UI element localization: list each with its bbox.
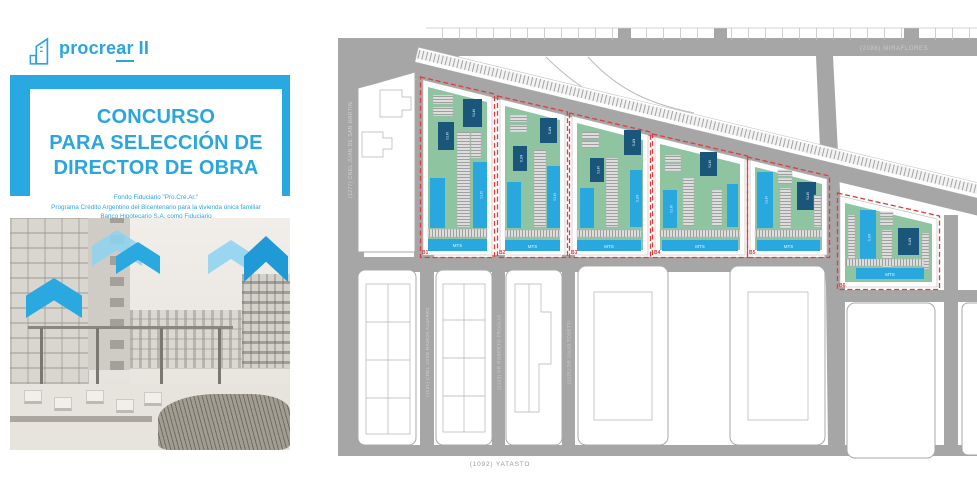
- parking-rows: [778, 170, 792, 176]
- tower-label: MTS: [708, 160, 712, 168]
- tower-label: MTS: [764, 196, 768, 204]
- tower-label: MTS: [519, 155, 523, 163]
- lot-ticks: [727, 28, 904, 40]
- photo-pergola-post: [160, 328, 163, 388]
- cover-photo: [10, 218, 290, 450]
- parking-band: [846, 259, 924, 266]
- parcel-id: B6: [839, 283, 846, 289]
- logo-text-underlined: ar: [116, 38, 133, 62]
- parcel-4: MTS MTS MTS B4: [653, 134, 748, 258]
- photo-seat-cube: [144, 392, 162, 406]
- title-line: CONCURSO: [49, 105, 262, 131]
- parking-rows: [880, 220, 893, 226]
- strip-label: MTS: [528, 244, 538, 249]
- tower-label: MTS: [669, 205, 673, 213]
- parcel-id: B3: [571, 250, 578, 256]
- lot-ticks: [426, 28, 618, 40]
- photo-pergola-post: [40, 328, 43, 388]
- block: [506, 270, 562, 445]
- strip-label: MTS: [885, 272, 895, 277]
- logo-text-suffix: II: [139, 38, 149, 59]
- parcel-3: MTS MTS MTS MTS B3: [570, 113, 651, 258]
- tower-label: MTS: [472, 109, 476, 117]
- parking-band: [755, 230, 822, 237]
- parking-band: [505, 230, 560, 237]
- block-northwest: [358, 72, 415, 252]
- tower-label: MTS: [553, 193, 557, 201]
- photo-grasses: [158, 394, 290, 450]
- lot-ticks: [631, 28, 714, 40]
- parking-rows: [880, 212, 893, 218]
- logo-wordmark: procrearII: [59, 38, 149, 62]
- site-plan: MTS MTS MTS MTS B1 MTS MTS MTS MTS B2: [335, 0, 977, 478]
- cover-page: procrearII CONCURSO PARA SELECCIÓN DE DI…: [0, 0, 320, 478]
- parcel-id: B4: [654, 250, 661, 256]
- parking-strip: [471, 132, 481, 158]
- tower-label: MTS: [632, 139, 636, 147]
- lot-ticks: [919, 28, 977, 40]
- parking-strip: [683, 178, 694, 226]
- parking-band: [577, 230, 641, 237]
- strip-label: MTS: [453, 243, 463, 248]
- street-label-troglio: (1123) DR ROBERTO TROGLIO: [497, 314, 502, 389]
- parcel-6: MTS MTS MTS B6: [838, 193, 940, 290]
- street-vertical-5: [944, 215, 958, 446]
- cover-title-card: CONCURSO PARA SELECCIÓN DE DIRECTOR DE O…: [30, 89, 282, 217]
- tower-label: MTS: [548, 127, 552, 135]
- parking-band: [660, 230, 740, 237]
- photo-seat-cube: [86, 390, 104, 404]
- block-partial: [962, 303, 977, 455]
- parking-rows: [665, 155, 681, 162]
- parcel-1: MTS MTS MTS MTS B1: [421, 77, 495, 258]
- building-blue: [580, 188, 594, 228]
- street-label-tosetti: (1125) DR JULIO TOSETTI: [567, 320, 572, 384]
- parking-strip: [848, 215, 855, 259]
- tower-label: MTS: [635, 195, 639, 203]
- street-label-san-martin: (1277) CNEL JUAN DE SAN MARTIN: [348, 102, 354, 198]
- strip-label: MTS: [695, 244, 705, 249]
- parking-strip: [712, 190, 722, 226]
- photo-wall: [130, 368, 290, 385]
- parking-strip: [606, 158, 618, 227]
- parking-strip: [814, 195, 821, 227]
- street-label-alvarez: (1121) CNEL JOSE RAMON ALVAREZ: [425, 307, 430, 397]
- photo-planter-edge: [10, 416, 152, 422]
- parking-strip: [457, 132, 470, 227]
- logo-text-pre: procre: [59, 38, 116, 59]
- parking-rows: [433, 107, 453, 116]
- photo-seat-cube: [116, 399, 134, 413]
- block: [730, 266, 825, 445]
- parking-rows: [778, 178, 792, 184]
- photo-pergola-beam: [28, 326, 233, 329]
- strip-label: MTS: [604, 244, 614, 249]
- parking-rows: [665, 164, 681, 171]
- title-line: PARA SELECCIÓN DE: [49, 131, 262, 157]
- tower-label: MTS: [867, 234, 871, 242]
- subtitle-line: Programa Crédito Argentino del Bicentena…: [51, 203, 261, 213]
- subtitle-line: Fondo Fiduciario "Pro.Cre.Ar.": [51, 193, 261, 203]
- photo-seat-cube: [54, 397, 72, 411]
- tower-label: MTS: [445, 132, 449, 140]
- photo-pergola-post: [96, 328, 99, 388]
- photo-pergola-post: [218, 328, 221, 388]
- parcel-2: MTS MTS MTS MTS B2: [498, 96, 568, 258]
- tower-label: MTS: [596, 166, 600, 174]
- parking-rows: [582, 141, 599, 148]
- parking-strip: [780, 188, 791, 228]
- tower-label: MTS: [479, 191, 483, 199]
- street-stub-north: [618, 28, 631, 56]
- cover-title: CONCURSO PARA SELECCIÓN DE DIRECTOR DE O…: [49, 105, 262, 182]
- tower-label: MTS: [806, 192, 810, 200]
- street-label-miraflores: (2086) MIRAFLORES: [860, 46, 928, 52]
- building-blue: [727, 184, 738, 227]
- parking-rows: [510, 115, 527, 122]
- photo-seat-cube: [24, 390, 42, 404]
- block: [358, 270, 416, 445]
- parking-rows: [582, 132, 599, 139]
- strip-label: MTS: [784, 244, 794, 249]
- north-lot-ticks: [426, 28, 977, 40]
- building-blue: [507, 182, 521, 228]
- block: [847, 303, 935, 458]
- parking-band: [428, 229, 487, 237]
- parking-rows: [510, 125, 527, 132]
- building-blue: [430, 178, 445, 228]
- parcel-id: B5: [749, 250, 756, 256]
- building-logo-icon: [28, 34, 52, 66]
- title-line: DIRECTOR DE OBRA: [49, 156, 262, 182]
- block: [578, 266, 668, 445]
- street-stub-north: [714, 28, 727, 56]
- tower-label: MTS: [908, 238, 912, 246]
- street-label-yatasto: (1092) YATASTO: [470, 461, 530, 468]
- parking-strip: [534, 150, 546, 227]
- procrear-logo: procrearII: [28, 34, 149, 66]
- parcel-id: B2: [499, 250, 506, 256]
- parcel-id: B1: [422, 250, 429, 256]
- parking-rows: [433, 95, 453, 104]
